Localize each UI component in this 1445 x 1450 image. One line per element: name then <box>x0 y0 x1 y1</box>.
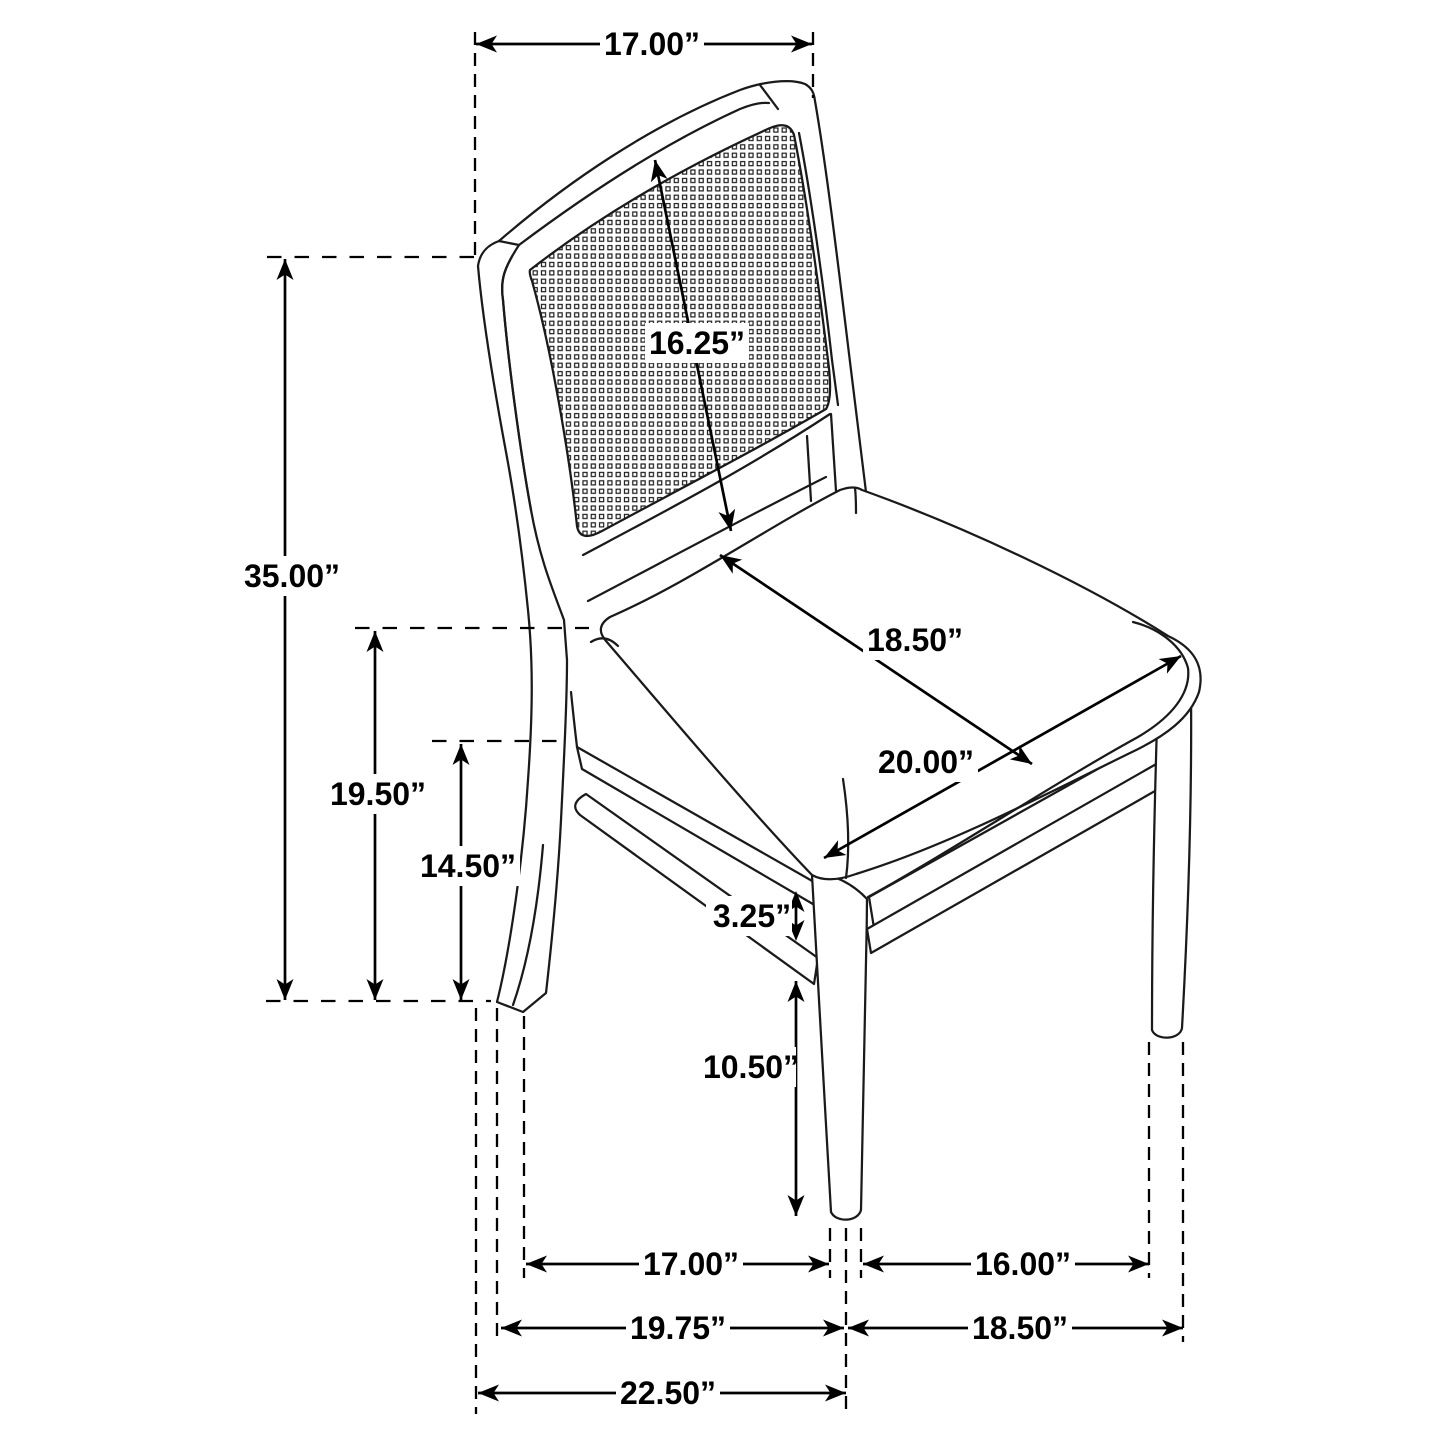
svg-text:20.00”: 20.00” <box>878 744 974 780</box>
svg-text:17.00”: 17.00” <box>643 1246 739 1282</box>
svg-text:14.50”: 14.50” <box>420 848 516 884</box>
svg-text:18.50”: 18.50” <box>972 1310 1068 1346</box>
svg-text:22.50”: 22.50” <box>620 1375 716 1411</box>
svg-text:19.75”: 19.75” <box>630 1310 726 1346</box>
svg-text:19.50”: 19.50” <box>330 776 426 812</box>
svg-text:10.50”: 10.50” <box>703 1049 799 1085</box>
svg-text:3.25”: 3.25” <box>713 898 791 934</box>
svg-text:35.00”: 35.00” <box>244 558 340 594</box>
svg-text:16.25”: 16.25” <box>649 325 745 361</box>
svg-text:16.00”: 16.00” <box>975 1246 1071 1282</box>
svg-text:17.00”: 17.00” <box>604 26 700 62</box>
svg-text:18.50”: 18.50” <box>867 622 963 658</box>
